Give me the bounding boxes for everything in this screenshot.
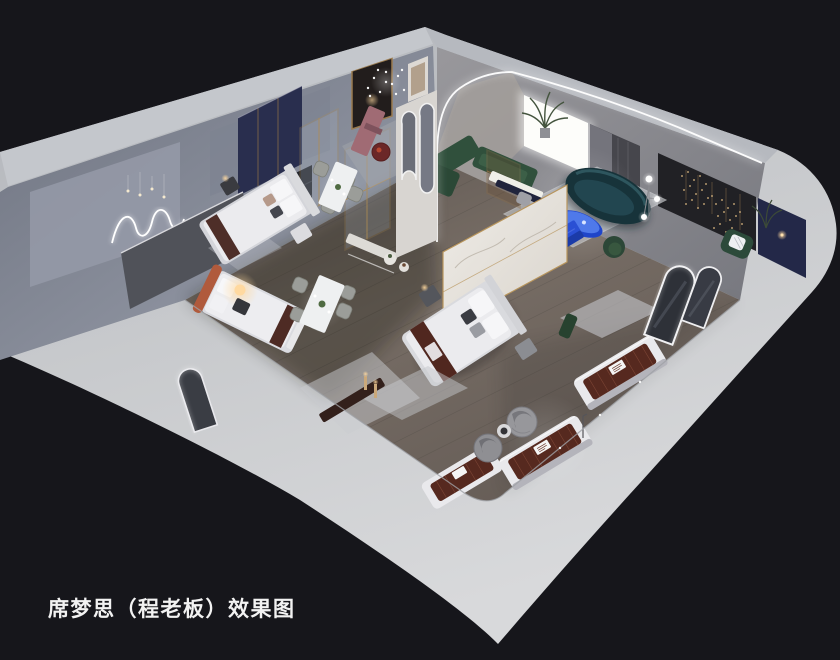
maroon-round-table xyxy=(372,143,390,161)
arch-mirror-a xyxy=(402,112,416,180)
round-side-table xyxy=(497,424,511,438)
rendering-canvas: 席梦思（程老板）效果图 xyxy=(0,0,840,660)
sconce-light xyxy=(781,234,784,237)
wicker-swivel-chair-2 xyxy=(474,434,502,462)
green-velvet-chair xyxy=(603,236,625,258)
arch-mirror-b xyxy=(420,104,434,193)
arch-mirror-panel xyxy=(396,90,437,258)
wall-art xyxy=(411,62,425,96)
doorway-glow xyxy=(365,93,379,107)
scene xyxy=(0,0,840,660)
caption: 席梦思（程老板）效果图 xyxy=(48,593,296,623)
wicker-swivel-chair-1 xyxy=(507,407,537,437)
